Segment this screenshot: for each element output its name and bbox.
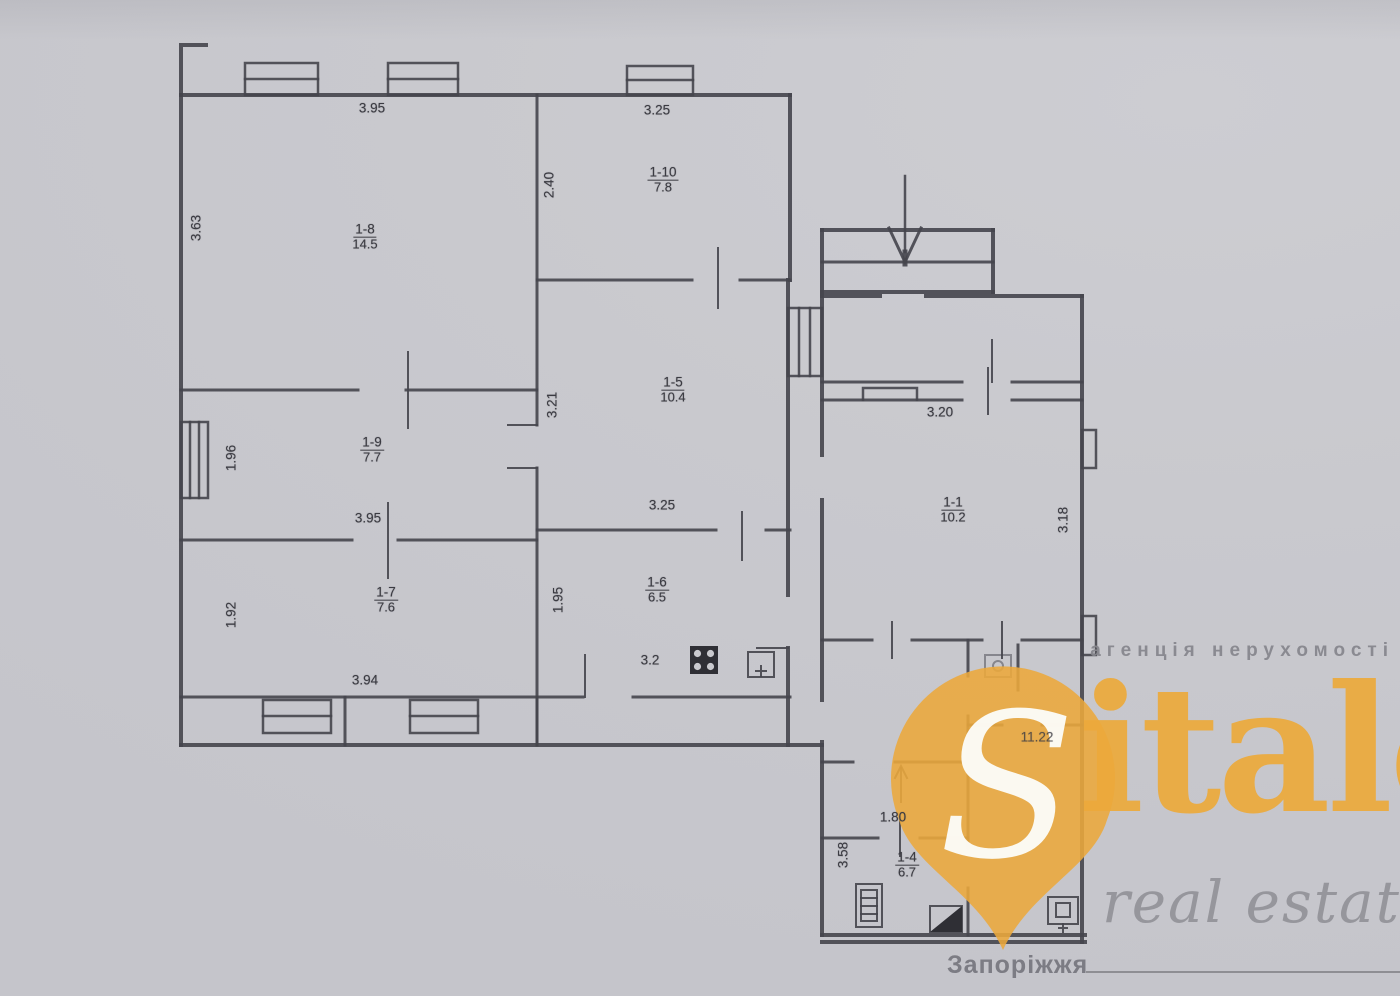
- watermark-brand-wordmark: italo: [1078, 628, 1400, 888]
- boiler-icon: [856, 884, 882, 927]
- watermark-city-label: Запоріжжя: [947, 951, 1088, 980]
- watermark-brand-subtitle: real estate: [1102, 868, 1400, 936]
- screenshot-root: { "watermark": { "agency_line": "агенція…: [0, 0, 1400, 996]
- scanned-floor-plan-photo: агенція нерухомості italo S real estate …: [0, 0, 1400, 996]
- window-symbols: [181, 63, 1096, 733]
- watermark-brand-initial: S: [938, 671, 1075, 904]
- entrance-arrow-icon: [889, 176, 921, 264]
- watermark-divider-line: [1086, 971, 1400, 973]
- stove-icon: [690, 646, 718, 674]
- sink-icon: [748, 652, 774, 677]
- outer-walls-main-block: [181, 45, 822, 745]
- watermark-logo-pin: S: [883, 660, 1123, 960]
